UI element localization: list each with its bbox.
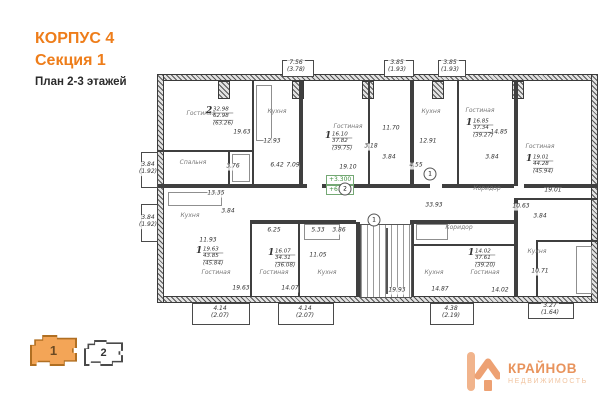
tab-section-2[interactable]: 2 (84, 340, 123, 366)
section-title: Секция 1 (35, 50, 127, 72)
room-label: Гостиная (334, 124, 363, 130)
company-logo: КРАЙНОВ НЕДВИЖИМОСТЬ (466, 349, 588, 398)
wall-segment (218, 81, 230, 99)
axis-bubble: 1 (368, 214, 381, 227)
dimension-label: 5.33 (311, 228, 324, 235)
apartment-info: 116.1037.82(39.75) (325, 132, 354, 153)
wall-segment (250, 220, 356, 224)
room-label: Коридор (445, 225, 472, 231)
dimension-label: 14.07 (281, 286, 298, 293)
dimension-label: 3.76 (226, 164, 239, 171)
room-label: Кухня (528, 249, 547, 255)
wall-segment (576, 246, 592, 294)
room-label: Гостиная (526, 144, 555, 150)
dimension-label: 11.70 (382, 126, 399, 133)
tab-section-1-label: 1 (32, 337, 75, 364)
axis-bubble: 1 (424, 168, 437, 181)
room-label: Кухня (422, 109, 441, 115)
dimension-label: 33.93 (425, 203, 442, 210)
dimension-label: 4.14(2.07) (296, 306, 314, 320)
wall-segment (416, 224, 448, 240)
dimension-label: 19.01 (544, 188, 561, 195)
wall-segment (591, 74, 598, 303)
wall-segment (250, 222, 252, 296)
wall-segment (536, 240, 598, 242)
dimension-label: 3.84 (533, 214, 546, 221)
dimension-label: 3.18 (364, 144, 377, 151)
dimension-label: 3.85(1.93) (388, 60, 406, 74)
floors-subtitle: План 2-3 этажей (35, 76, 127, 88)
dimension-label: 6.25 (267, 228, 280, 235)
dimension-label: 6.42 (270, 163, 283, 170)
apartment-info: 119.6343.85(45.84) (196, 247, 225, 268)
dimension-label: 3.27(1.64) (541, 303, 559, 317)
logo-text: КРАЙНОВ НЕДВИЖИМОСТЬ (508, 362, 588, 385)
axis-bubble: 2 (339, 183, 352, 196)
room-label: Спальня (180, 160, 207, 166)
room-label: Кухня (318, 270, 337, 276)
dimension-label: 4.55 (409, 163, 422, 170)
dimension-label: 11.93 (199, 238, 216, 245)
tab-section-1[interactable]: 1 (30, 335, 77, 366)
dimension-label: 3.84(1.92) (139, 162, 157, 176)
wall-segment (157, 74, 164, 303)
dimension-label: 7.56(3.78) (287, 60, 305, 74)
wall-segment (514, 198, 598, 200)
room-label: Кухня (181, 213, 200, 219)
dimension-label: 7.09 (286, 163, 299, 170)
room-label: Гостиная (202, 270, 231, 276)
apartment-info: 119.0144.28(45.94) (526, 155, 555, 176)
dimension-label: 12.93 (263, 139, 280, 146)
room-label: Гостиная (260, 270, 289, 276)
room-label: Кухня (268, 109, 287, 115)
wall-segment (368, 81, 370, 184)
dimension-label: 3.85(1.93) (441, 60, 459, 74)
dimension-label: 10.63 (512, 204, 529, 211)
wall-segment (252, 81, 254, 184)
dimension-label: 3.84(1.92) (139, 215, 157, 229)
wall-segment (432, 81, 444, 99)
dimension-label: 3.86 (332, 228, 345, 235)
dimension-label: 11.05 (309, 253, 326, 260)
wall-segment (410, 244, 514, 246)
logo-subtitle: НЕДВИЖИМОСТЬ (508, 378, 588, 385)
dimension-label: 10.71 (531, 269, 548, 276)
dimension-label: 12.91 (419, 139, 436, 146)
dimension-label: 19.10 (339, 165, 356, 172)
apartment-info: 114.0237.61(39.20) (468, 249, 497, 270)
dimension-label: 4.38(2.19) (442, 306, 460, 320)
dimension-label: 14.87 (431, 287, 448, 294)
dimension-label: 4.14(2.07) (211, 306, 229, 320)
dimension-label: 19.63 (233, 130, 250, 137)
dimension-label: 3.84 (485, 155, 498, 162)
apartment-info: 232.9862.98(63.26) (206, 107, 235, 128)
room-label: Коридор (473, 186, 500, 192)
dimension-label: 3.84 (382, 155, 395, 162)
dimension-label: 13.35 (207, 191, 224, 198)
wall-segment (157, 74, 598, 81)
house-k-icon (466, 349, 500, 398)
dimension-label: 3.84 (221, 209, 234, 216)
building-title: КОРПУС 4 (35, 28, 127, 50)
apartment-info: 116.8537.34(39.27) (466, 119, 495, 140)
apartment-info: 116.0734.31(36.08) (268, 249, 297, 270)
room-label: Гостиная (471, 270, 500, 276)
dimension-label: 14.02 (491, 288, 508, 295)
wall-segment (514, 186, 518, 198)
tab-section-2-label: 2 (86, 342, 121, 364)
dimension-label: 19.93 (388, 288, 405, 295)
plan-header: КОРПУС 4 Секция 1 План 2-3 этажей (35, 28, 127, 88)
room-label: Гостиная (466, 108, 495, 114)
logo-title: КРАЙНОВ (508, 362, 588, 377)
room-label: Кухня (425, 270, 444, 276)
section-tabs: 1 2 (30, 335, 123, 366)
dimension-label: 19.63 (232, 286, 249, 293)
wall-segment (457, 81, 459, 184)
wall-segment (157, 150, 252, 152)
wall-segment (157, 184, 307, 188)
